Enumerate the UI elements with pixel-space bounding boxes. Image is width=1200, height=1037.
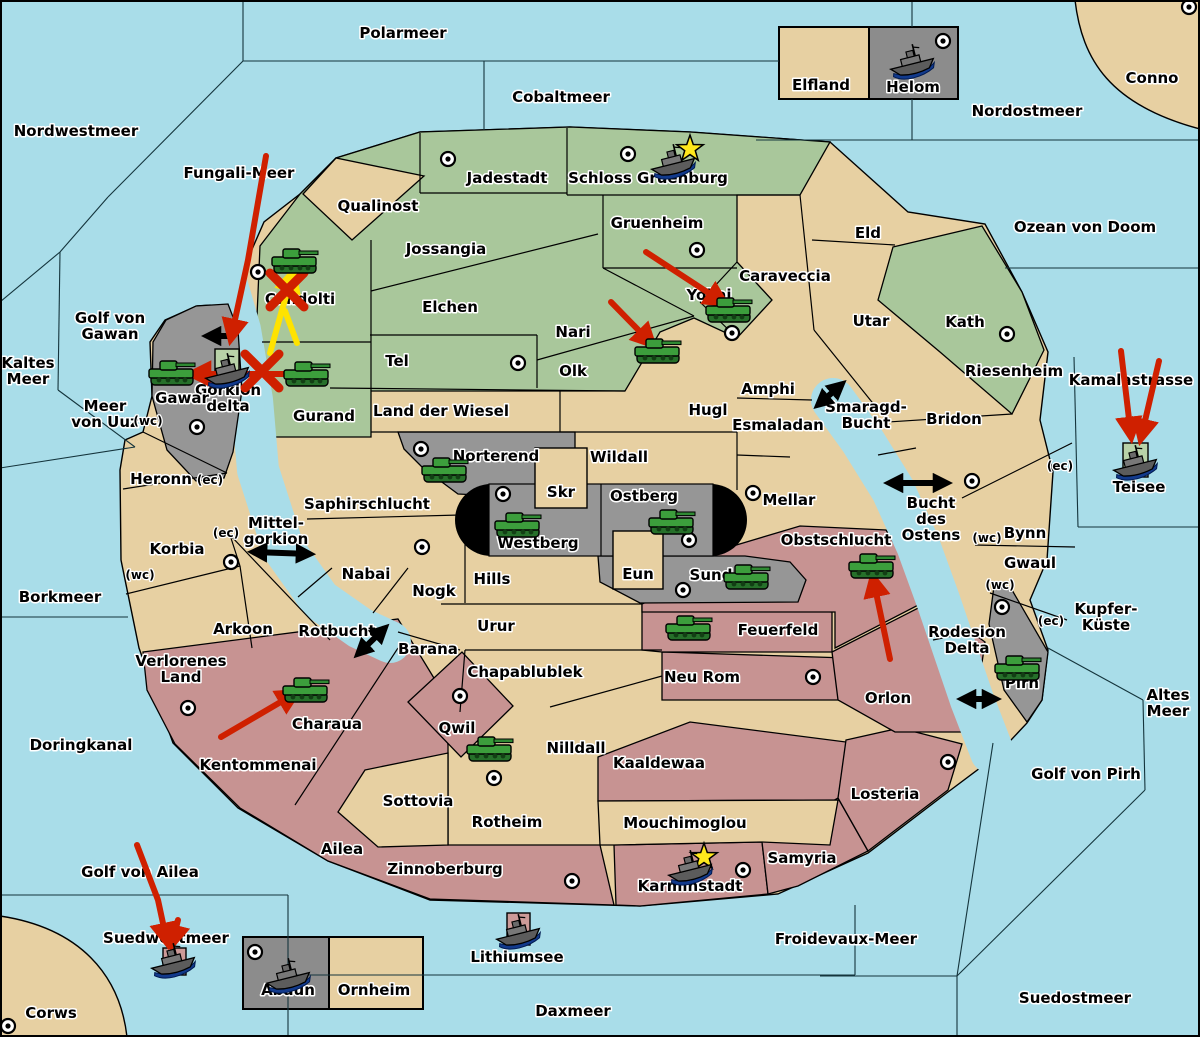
region-label-golf-von-pirh: Golf von Pirh — [1031, 765, 1141, 783]
supply-center-core — [625, 151, 630, 156]
supply-center-dot — [1182, 0, 1196, 14]
region-label-bridon: Bridon — [926, 410, 982, 428]
region-label-neu-rom: Neu Rom — [664, 668, 740, 686]
region-label-heronn: Heronn — [130, 470, 192, 488]
region-label-golf-von-ailea: Golf von Ailea — [81, 863, 199, 881]
region-label-teisee: Teisee — [1113, 478, 1166, 496]
supply-center-dot — [806, 670, 820, 684]
supply-center-dot — [995, 600, 1009, 614]
region-label-coast-148: (wc) — [133, 414, 162, 428]
region-label-samyria: Samyria — [768, 849, 837, 867]
region-label-skr: Skr — [547, 483, 576, 501]
region-label-orlon: Orlon — [865, 689, 911, 707]
supply-center-dot — [248, 945, 262, 959]
region-label-hugl: Hugl — [688, 401, 727, 419]
supply-center-core — [5, 1023, 10, 1028]
supply-center-core — [515, 360, 520, 365]
region-label-nordostmeer: Nordostmeer — [972, 102, 1083, 120]
supply-center-core — [1186, 4, 1191, 9]
region-label-eld: Eld — [855, 224, 881, 242]
region-label-eun: Eun — [622, 565, 654, 583]
region-label-wildall: Wildall — [590, 448, 648, 466]
region-label-qwil: Qwil — [439, 719, 476, 737]
layer-sea-and-land — [0, 0, 1200, 1037]
supply-center-core — [419, 544, 424, 549]
region-label-sottovia: Sottovia — [383, 792, 454, 810]
region-label-kaaldewaa: Kaaldewaa — [613, 754, 705, 772]
supply-center-core — [457, 693, 462, 698]
supply-center-core — [940, 38, 945, 43]
region-label-charaua: Charaua — [292, 715, 362, 733]
supply-center-dot — [415, 540, 429, 554]
region-label-arkoon: Arkoon — [213, 620, 273, 638]
region-label-nabai: Nabai — [342, 565, 391, 583]
region-label-coast-226: (ec) — [213, 526, 239, 540]
region-label-feuerfeld: Feuerfeld — [738, 621, 819, 639]
region-label-corws: Corws — [25, 1004, 77, 1022]
region-label-fungali-meer: Fungali-Meer — [184, 164, 295, 182]
region-label-schloss-gruenburg: Schloss Gruenburg — [568, 169, 728, 187]
region-label-coast-140: (wc) — [125, 568, 154, 582]
region-label-amphi: Amphi — [741, 380, 795, 398]
supply-center-dot — [487, 771, 501, 785]
region-label-conno: Conno — [1126, 69, 1179, 87]
supply-center-dot — [1, 1019, 15, 1033]
supply-center-core — [810, 674, 815, 679]
region-label-losteria: Losteria — [851, 785, 920, 803]
supply-center-dot — [621, 147, 635, 161]
supply-center-dot — [496, 487, 510, 501]
supply-center-core — [418, 446, 423, 451]
supply-center-core — [185, 705, 190, 710]
supply-center-core — [500, 491, 505, 496]
region-label-caraveccia: Caraveccia — [739, 267, 831, 285]
region-label-urur: Urur — [477, 617, 515, 635]
region-label-riesenheim: Riesenheim — [965, 362, 1063, 380]
region-label-jossangia: Jossangia — [405, 240, 487, 258]
region-label-rotbucht: Rotbucht — [298, 622, 375, 640]
supply-center-core — [1004, 331, 1009, 336]
supply-center-core — [999, 604, 1004, 609]
region-label-land-der-wiesel: Land der Wiesel — [373, 402, 509, 420]
region-label-chapablublek: Chapablublek — [467, 663, 583, 681]
region-label-doringkanal: Doringkanal — [30, 736, 133, 754]
supply-center-core — [255, 269, 260, 274]
region-label-kaltes-meer: KaltesMeer — [1, 354, 54, 388]
supply-center-core — [680, 587, 685, 592]
region-label-barana: Barana — [398, 640, 458, 658]
supply-center-dot — [190, 420, 204, 434]
supply-center-core — [729, 330, 734, 335]
region-label-mittel-gorkion: Mittel-gorkion — [244, 514, 309, 548]
supply-center-dot — [676, 583, 690, 597]
region-label-suedostmeer: Suedostmeer — [1019, 989, 1132, 1007]
region-label-elfland: Elfland — [792, 76, 850, 94]
supply-center-dot — [725, 326, 739, 340]
region-label-gurand: Gurand — [293, 407, 355, 425]
region-label-kupfer-kueste: Kupfer-Küste — [1074, 600, 1137, 634]
region-label-gruenheim: Gruenheim — [611, 214, 704, 232]
region-label-esmaladan: Esmaladan — [732, 416, 824, 434]
region-label-polarmeer: Polarmeer — [359, 24, 447, 42]
region-label-utar: Utar — [853, 312, 890, 330]
supply-center-dot — [941, 755, 955, 769]
supply-center-dot — [441, 152, 455, 166]
region-label-kamalastrasse: Kamalastrasse — [1069, 371, 1193, 389]
supply-center-core — [969, 478, 974, 483]
supply-center-dot — [682, 533, 696, 547]
supply-center-dot — [965, 474, 979, 488]
supply-center-dot — [746, 486, 760, 500]
region-label-obstschlucht: Obstschlucht — [781, 531, 892, 549]
region-label-cobaltmeer: Cobaltmeer — [512, 88, 610, 106]
supply-center-dot — [414, 442, 428, 456]
region-label-coast-1060: (ec) — [1047, 459, 1073, 473]
game-map[interactable]: PolarmeerCobaltmeerNordwestmeerNordostme… — [0, 0, 1200, 1037]
region-label-lithiumsee: Lithiumsee — [470, 948, 563, 966]
region-label-coast-1000: (wc) — [985, 578, 1014, 592]
supply-center-dot — [224, 555, 238, 569]
supply-center-core — [228, 559, 233, 564]
region-label-golf-von-gawan: Golf vonGawan — [75, 309, 145, 343]
supply-center-core — [252, 949, 257, 954]
region-label-coast-210: (ec) — [197, 473, 223, 487]
supply-center-dot — [181, 701, 195, 715]
region-label-olk: Olk — [559, 362, 588, 380]
region-label-mellar: Mellar — [763, 491, 817, 509]
region-label-hills: Hills — [474, 570, 511, 588]
supply-center-core — [569, 878, 574, 883]
region-label-froidevaux-meer: Froidevaux-Meer — [775, 930, 918, 948]
supply-center-core — [945, 759, 950, 764]
region-label-saphirschlucht: Saphirschlucht — [304, 495, 430, 513]
strait-arrow — [253, 552, 310, 554]
region-label-tel: Tel — [385, 352, 409, 370]
supply-center-dot — [690, 243, 704, 257]
supply-center-dot — [453, 689, 467, 703]
region-label-kentommenai: Kentommenai — [199, 756, 316, 774]
region-label-ozean-von-doom: Ozean von Doom — [1014, 218, 1156, 236]
region-label-nogk: Nogk — [412, 582, 457, 600]
region-label-nordwestmeer: Nordwestmeer — [14, 122, 139, 140]
region-label-borkmeer: Borkmeer — [19, 588, 102, 606]
game-map-stage[interactable]: PolarmeerCobaltmeerNordwestmeerNordostme… — [0, 0, 1200, 1037]
region-label-coast-1051: (ec) — [1038, 614, 1064, 628]
supply-center-core — [491, 775, 496, 780]
region-label-kath: Kath — [945, 313, 985, 331]
region-label-qualinost: Qualinost — [338, 197, 419, 215]
supply-center-dot — [251, 265, 265, 279]
supply-center-core — [686, 537, 691, 542]
region-label-elchen: Elchen — [422, 298, 478, 316]
region-label-ailea: Ailea — [321, 840, 363, 858]
region-label-korbia: Korbia — [149, 540, 204, 558]
region-label-gawar: Gawar — [155, 389, 209, 407]
supply-center-core — [740, 867, 745, 872]
supply-center-dot — [565, 874, 579, 888]
supply-center-dot — [1000, 327, 1014, 341]
region-label-jadestadt: Jadestadt — [466, 169, 548, 187]
supply-center-dot — [736, 863, 750, 877]
supply-center-dot — [936, 34, 950, 48]
region-label-coast-987: (wc) — [972, 531, 1001, 545]
region-label-mouchimoglou: Mouchimoglou — [623, 814, 746, 832]
region-label-nari: Nari — [555, 323, 590, 341]
supply-center-core — [694, 247, 699, 252]
region-label-gwaul: Gwaul — [1004, 554, 1056, 572]
region-label-ostberg: Ostberg — [610, 487, 678, 505]
region-label-ornheim: Ornheim — [338, 981, 410, 999]
supply-center-dot — [511, 356, 525, 370]
region-label-nilldall: Nilldall — [546, 739, 605, 757]
supply-center-core — [445, 156, 450, 161]
region-label-altes-meer: AltesMeer — [1146, 686, 1189, 720]
region-label-bynn: Bynn — [1004, 524, 1047, 542]
supply-center-core — [194, 424, 199, 429]
region-label-rotheim: Rotheim — [472, 813, 543, 831]
region-label-daxmeer: Daxmeer — [535, 1002, 611, 1020]
region-label-zinnoberburg: Zinnoberburg — [387, 860, 503, 878]
supply-center-core — [750, 490, 755, 495]
region-label-helom: Helom — [886, 78, 940, 96]
